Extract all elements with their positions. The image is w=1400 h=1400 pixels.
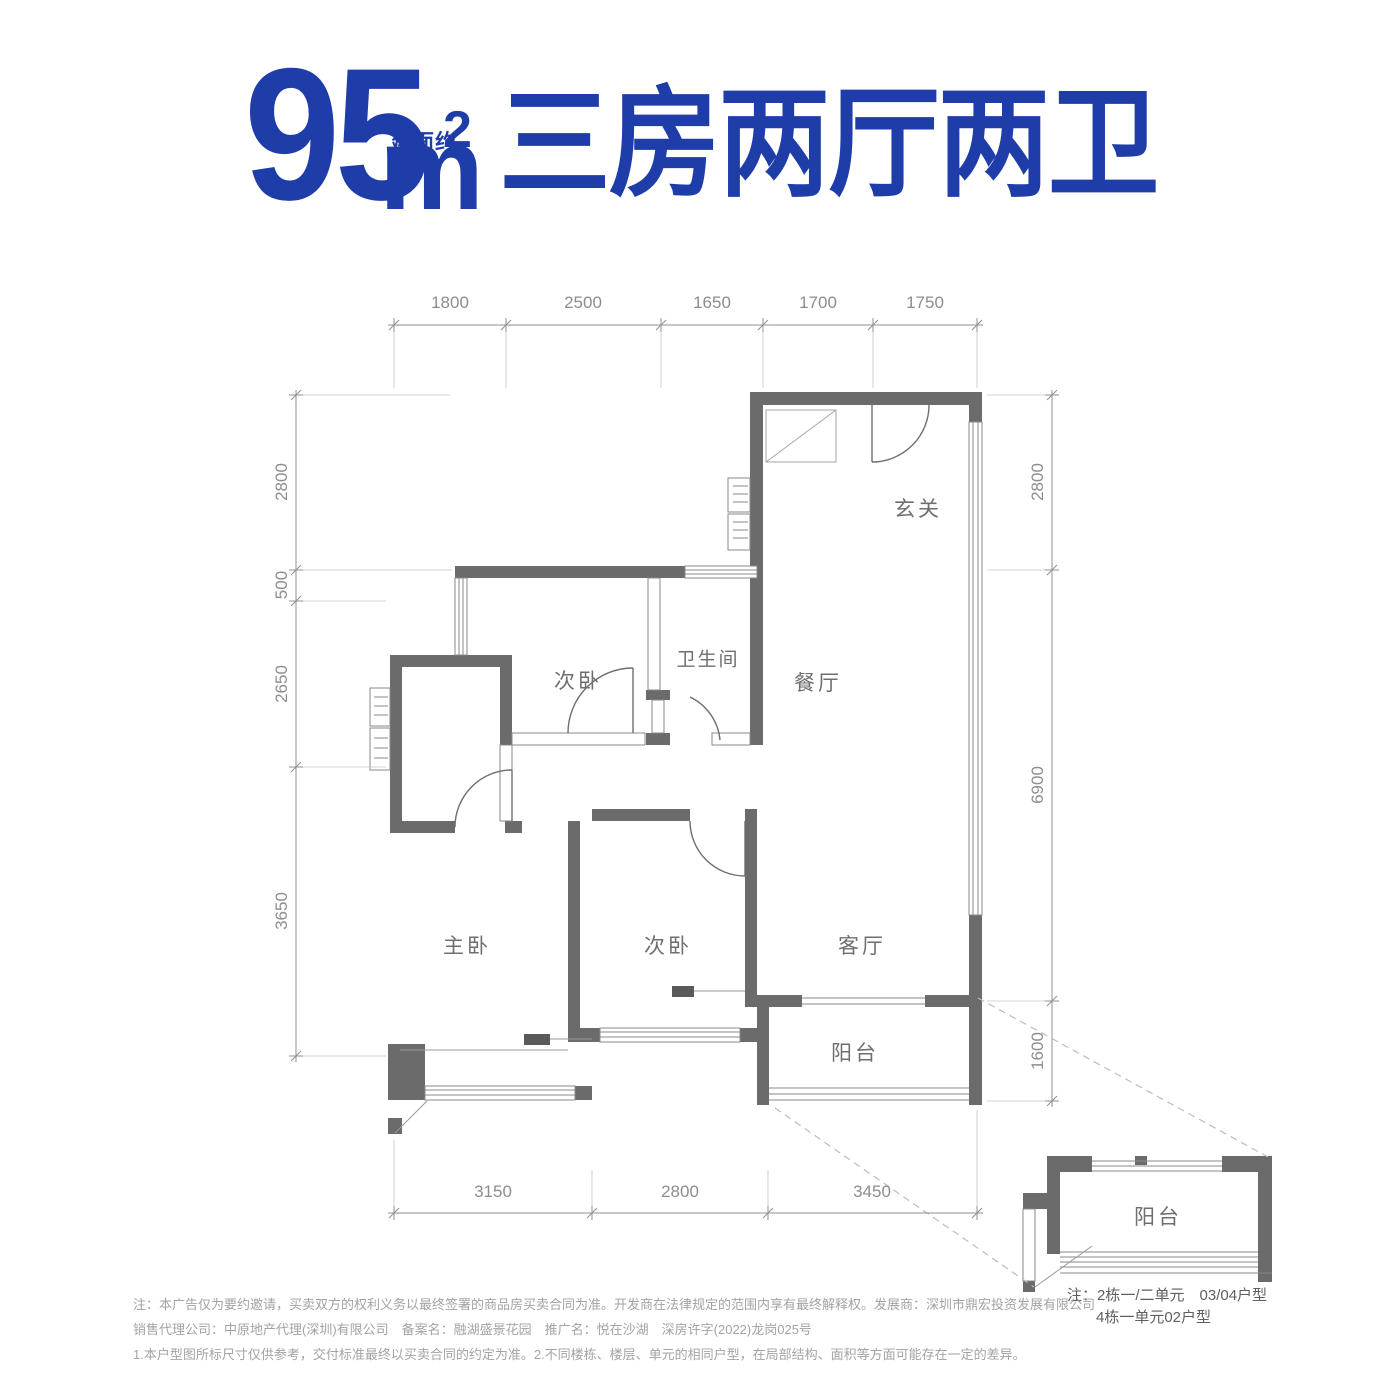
room-label-entry: 玄关 xyxy=(894,493,942,523)
dim-bottom-3: 3450 xyxy=(853,1182,891,1202)
dim-top-4: 1700 xyxy=(799,293,837,313)
dim-bottom-1: 3150 xyxy=(474,1182,512,1202)
inset-note-line2: 4栋一单元02户型 xyxy=(1096,1306,1211,1327)
room-label-bedroom-top: 次卧 xyxy=(554,665,602,695)
room-label-dining: 餐厅 xyxy=(794,667,842,697)
dim-top-3: 1650 xyxy=(693,293,731,313)
dim-top-5: 1750 xyxy=(906,293,944,313)
dim-right-1: 2800 xyxy=(1028,463,1048,501)
disclaimer-line3: 1.本户型图所标尺寸仅供参考，交付标准最终以买卖合同的约定为准。2.不同楼栋、楼… xyxy=(133,1342,1043,1367)
room-label-master: 主卧 xyxy=(443,930,491,960)
room-label-bathroom: 卫生间 xyxy=(676,645,739,672)
dim-left-2: 500 xyxy=(272,571,292,599)
room-label-bedroom-bottom: 次卧 xyxy=(644,930,692,960)
dim-top-2: 2500 xyxy=(564,293,602,313)
dim-top-1: 1800 xyxy=(431,293,469,313)
dim-right-3: 1600 xyxy=(1028,1032,1048,1070)
dim-left-4: 3650 xyxy=(272,892,292,930)
inset-balcony-label: 阳台 xyxy=(1134,1201,1182,1231)
dim-left-3: 2650 xyxy=(272,665,292,703)
disclaimer: 注：本广告仅为要约邀请，买卖双方的权利义务以最终签署的商品房买卖合同为准。开发商… xyxy=(133,1292,1043,1367)
inset-note-line1: 注：2栋一/二单元 03/04户型 xyxy=(1067,1284,1267,1305)
disclaimer-line1: 注：本广告仅为要约邀请，买卖双方的权利义务以最终签署的商品房买卖合同为准。开发商… xyxy=(133,1292,1043,1317)
disclaimer-line2: 销售代理公司：中原地产代理(深圳)有限公司 备案名：融湖盛景花园 推广名：悦在沙… xyxy=(133,1317,1043,1342)
dim-right-2: 6900 xyxy=(1028,766,1048,804)
floorplan-flyer: 95 建面约 2 m 三房两厅两卫 xyxy=(0,0,1400,1400)
room-label-living: 客厅 xyxy=(838,930,886,960)
dim-bottom-2: 2800 xyxy=(661,1182,699,1202)
room-label-balcony: 阳台 xyxy=(831,1037,879,1067)
dim-left-1: 2800 xyxy=(272,463,292,501)
floor-plan-drawing xyxy=(0,0,1400,1400)
